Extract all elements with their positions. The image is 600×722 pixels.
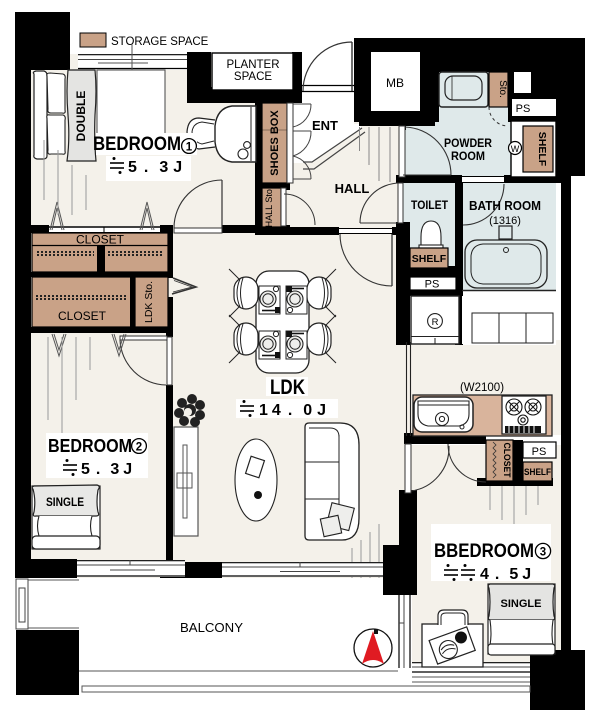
svg-text:R: R	[432, 317, 439, 328]
svg-text:PS: PS	[532, 446, 547, 458]
svg-text:CLOSET: CLOSET	[58, 309, 107, 323]
svg-text:BBEDROOM: BBEDROOM	[434, 541, 534, 562]
svg-text:LDK: LDK	[270, 376, 305, 399]
svg-text:ROOM: ROOM	[451, 151, 485, 163]
svg-text:BALCONY: BALCONY	[180, 620, 243, 635]
svg-text:HALL: HALL	[335, 181, 370, 196]
svg-text:SHELF: SHELF	[524, 467, 551, 478]
svg-text:SHELF: SHELF	[412, 253, 447, 265]
svg-text:TOILET: TOILET	[411, 198, 449, 212]
svg-text:PS: PS	[516, 103, 531, 115]
svg-text:SHOES BOX: SHOES BOX	[269, 110, 281, 176]
svg-text:LDK Sto.: LDK Sto.	[143, 281, 155, 323]
svg-text:2: 2	[136, 442, 142, 454]
svg-text:POWDER: POWDER	[444, 138, 493, 150]
svg-text:1: 1	[186, 142, 193, 154]
svg-text:(W2100): (W2100)	[460, 382, 504, 394]
svg-text:3: 3	[540, 547, 546, 559]
svg-text:SINGLE: SINGLE	[501, 598, 542, 610]
svg-text:BEDROOM: BEDROOM	[48, 436, 132, 456]
svg-text:PLANTER: PLANTER	[226, 59, 279, 71]
svg-text:Sto.: Sto.	[497, 80, 508, 98]
svg-text:SHELF: SHELF	[536, 132, 548, 167]
svg-text:HALL Sto.: HALL Sto.	[264, 187, 274, 228]
svg-text:W: W	[511, 144, 520, 154]
svg-text:BATH ROOM: BATH ROOM	[469, 199, 541, 213]
svg-text:ENT: ENT	[312, 118, 338, 133]
svg-text:(1316): (1316)	[489, 215, 521, 227]
svg-text:DOUBLE: DOUBLE	[74, 91, 88, 142]
svg-text:SPACE: SPACE	[234, 71, 272, 83]
svg-text:SINGLE: SINGLE	[46, 497, 84, 509]
svg-text:MB: MB	[386, 76, 404, 90]
svg-text:CLOSET: CLOSET	[76, 233, 125, 247]
svg-text:CLOSET: CLOSET	[501, 443, 512, 478]
svg-text:STORAGE SPACE: STORAGE SPACE	[111, 36, 209, 48]
svg-text:PS: PS	[425, 279, 440, 291]
svg-text:BEDROOM: BEDROOM	[93, 134, 181, 155]
